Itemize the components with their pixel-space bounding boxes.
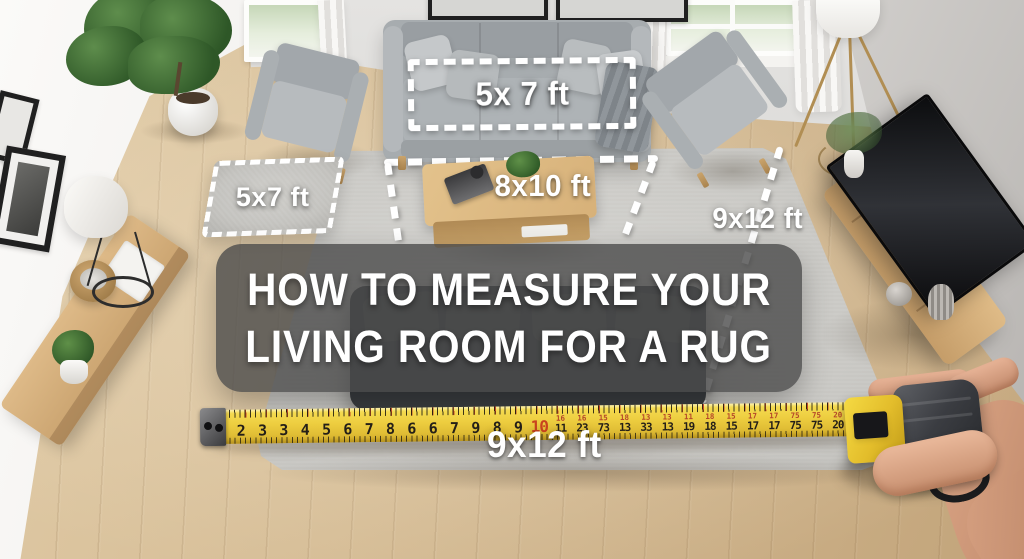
tape-number-cell: 75 75 xyxy=(784,410,806,432)
living-room-scene: 5x7 ft 5x 7 ft 8x10 ft 9x12 ft HOW TO ME… xyxy=(0,0,1024,559)
tape-number: 75 xyxy=(811,419,822,430)
branch-vase xyxy=(844,150,864,178)
plant-soil xyxy=(176,92,210,104)
case-groove xyxy=(901,397,971,407)
tape-number-cell: 5 xyxy=(315,415,337,437)
tape-hook-hole xyxy=(204,422,212,430)
tape-number-cell: 2 xyxy=(230,417,252,439)
rug-size-label-9x12: 9x12 ft xyxy=(712,203,803,236)
tape-hook xyxy=(200,408,226,446)
tape-number-cell: 13 33 xyxy=(635,412,657,434)
tape-number-cell: 18 18 xyxy=(699,411,721,433)
tape-number: 9 xyxy=(471,421,479,436)
case-groove xyxy=(903,412,973,422)
tape-measurement-label-9x12: 9x12 ft xyxy=(487,424,602,466)
tape-number-cell: 7 xyxy=(443,414,465,436)
tape-number: 2 xyxy=(237,424,245,439)
tape-number: 6 xyxy=(343,422,351,437)
tape-number: 13 xyxy=(662,421,673,432)
wall-picture xyxy=(556,0,688,22)
tape-number-cell: 8 xyxy=(379,415,401,437)
tape-number-cell: 17 17 xyxy=(742,410,764,432)
title-line-2: LIVING ROOM FOR A RUG xyxy=(246,320,773,373)
tape-number-cell: 3 xyxy=(251,416,273,438)
tape-number: 19 xyxy=(683,421,694,432)
tape-number-cell: 4 xyxy=(294,416,316,438)
tape-number-cell: 7 xyxy=(358,415,380,437)
tape-number: 3 xyxy=(279,423,287,438)
tape-number: 3 xyxy=(258,423,266,438)
rug-size-label-8x10: 8x10 ft xyxy=(495,168,592,204)
tape-number-cell: 6 xyxy=(401,414,423,436)
table-lamp-shade xyxy=(64,176,128,238)
dashed-rug-outline-sofa-5x7: 5x 7 ft xyxy=(408,57,637,131)
rug-size-label-sofa-5x7: 5x 7 ft xyxy=(475,75,569,114)
rug-size-label-5x7: 5x7 ft xyxy=(236,182,310,213)
decor-vase xyxy=(928,284,954,320)
tape-number: 20 xyxy=(832,419,843,430)
tape-hook-hole xyxy=(215,424,223,432)
small-plant-pot xyxy=(60,360,88,384)
tape-number-cell: 9 xyxy=(464,414,486,436)
tape-number-cell: 6 xyxy=(422,414,444,436)
title-line-1: HOW TO MEASURE YOUR xyxy=(247,263,771,316)
tape-number-cell: 6 xyxy=(337,415,359,437)
tape-number-cell: 18 13 xyxy=(614,412,636,434)
small-rug-sample-5x7: 5x7 ft xyxy=(201,156,344,237)
tape-number: 4 xyxy=(301,423,309,438)
sofa-arm xyxy=(383,26,403,152)
tape-number: 8 xyxy=(386,422,394,437)
tape-number: 7 xyxy=(450,421,458,436)
tape-number-cell: 11 19 xyxy=(678,411,700,433)
tape-number: 75 xyxy=(790,419,801,430)
table-lamp-base xyxy=(92,276,154,308)
tape-number: 15 xyxy=(726,420,737,431)
tape-number-cell: 13 13 xyxy=(656,411,678,433)
tape-number: 17 xyxy=(768,420,779,431)
sofa-seam xyxy=(557,23,559,57)
tape-number: 33 xyxy=(640,421,651,432)
tape-number: 7 xyxy=(365,422,373,437)
tape-number: 13 xyxy=(619,421,630,432)
tape-number: 5 xyxy=(322,423,330,438)
decor-sphere xyxy=(886,282,912,306)
tape-number: 18 xyxy=(704,420,715,431)
wall-picture xyxy=(428,0,548,20)
tape-number-cell: 3 xyxy=(273,416,295,438)
case-window xyxy=(853,411,889,439)
tape-number: 17 xyxy=(747,420,758,431)
title-overlay: HOW TO MEASURE YOUR LIVING ROOM FOR A RU… xyxy=(216,244,802,392)
tape-number-cell: 75 75 xyxy=(806,409,828,431)
tape-number-cell: 17 17 xyxy=(763,410,785,432)
tape-number-cell: 15 15 xyxy=(720,411,742,433)
tape-number: 6 xyxy=(429,421,437,436)
tape-number: 6 xyxy=(407,422,415,437)
picture-photo xyxy=(6,162,50,236)
